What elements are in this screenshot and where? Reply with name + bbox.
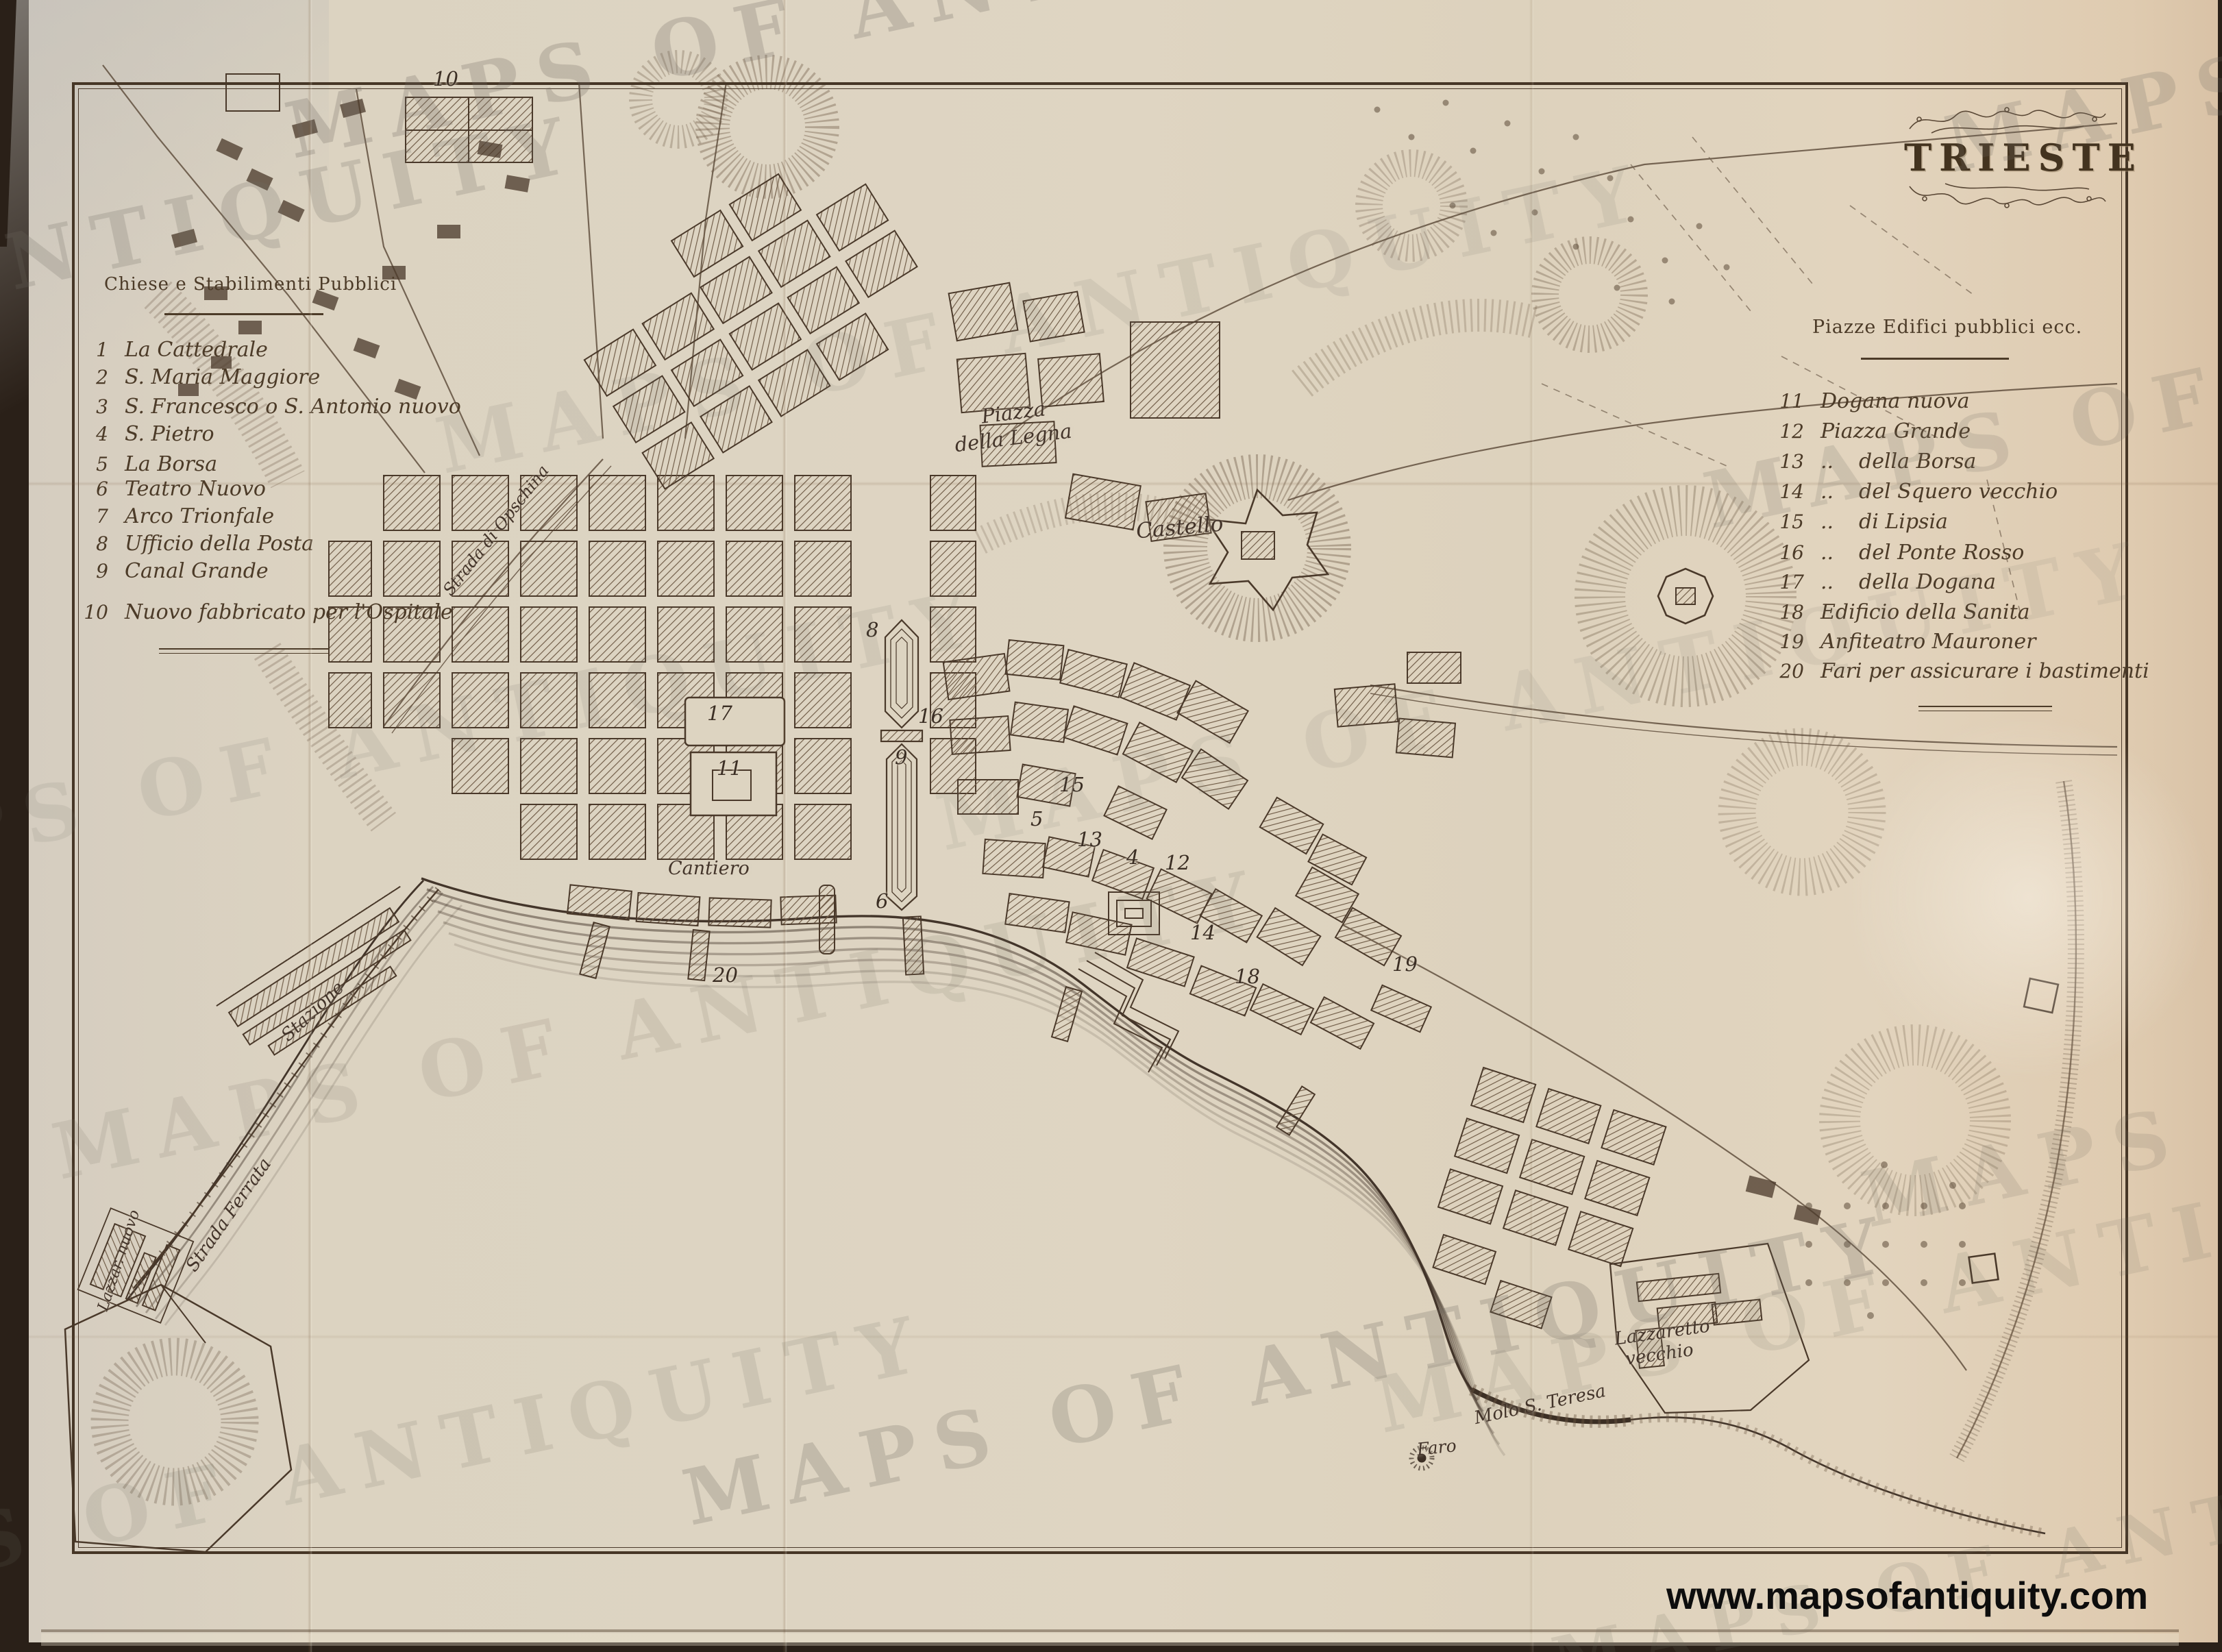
legend-item-label: Canal Grande — [125, 559, 269, 583]
legend-item-number: 17 — [1771, 571, 1804, 593]
map-number-6: 6 — [876, 889, 888, 913]
legend-item-number: 7 — [75, 505, 108, 528]
legend-item-label: S. Pietro — [125, 422, 214, 446]
legend-item-label: Ufficio della Posta — [125, 532, 314, 556]
legend-item-number: 2 — [75, 366, 108, 389]
photo-of-antique-map: TRIESTE Chiese e Stabilimenti Pubblici 1… — [0, 0, 2222, 1652]
legend-item-label: di Lipsia — [1859, 510, 1948, 534]
camera-glare — [1843, 713, 2213, 1083]
legend-item-number: 6 — [75, 478, 108, 500]
legend-item-10: 10Nuovo fabbricato per l'Ospitale — [75, 600, 453, 624]
legend-ditto-mark: .. — [1820, 541, 1859, 565]
legend-left-underline — [164, 313, 323, 315]
legend-right-bottom-rule — [1918, 706, 2052, 711]
legend-item-9: 9Canal Grande — [75, 559, 269, 583]
legend-item-number: 4 — [75, 423, 108, 445]
legend-item-3: 3S. Francesco o S. Antonio nuovo — [75, 395, 461, 419]
legend-item-label: Nuovo fabbricato per l'Ospitale — [125, 600, 453, 624]
website-url: www.mapsofantiquity.com — [1666, 1573, 2148, 1618]
legend-item-number: 9 — [75, 560, 108, 582]
map-number-19: 19 — [1392, 952, 1418, 976]
legend-item-8: 8Ufficio della Posta — [75, 532, 314, 556]
legend-item-label: Teatro Nuovo — [125, 477, 266, 501]
title-flourish-bottom — [1904, 180, 2110, 211]
map-number-16: 16 — [918, 704, 943, 728]
legend-left-bottom-rule — [159, 648, 329, 654]
legend-item-number: 5 — [75, 453, 108, 476]
legend-item-7: 7Arco Trionfale — [75, 504, 274, 528]
map-number-4: 4 — [1126, 846, 1139, 869]
legend-item-number: 16 — [1771, 541, 1804, 564]
legend-item-number: 11 — [1771, 390, 1804, 412]
map-number-18: 18 — [1235, 965, 1260, 988]
map-label-cantiero: Cantiero — [668, 858, 750, 879]
legend-item-label: Arco Trionfale — [125, 504, 274, 528]
legend-item-4: 4S. Pietro — [75, 422, 214, 446]
legend-item-number: 1 — [75, 338, 108, 361]
map-number-11: 11 — [717, 756, 742, 780]
legend-item-number: 8 — [75, 532, 108, 555]
legend-item-number: 3 — [75, 395, 108, 418]
legend-item-1: 1La Cattedrale — [75, 338, 268, 362]
legend-right-underline — [1861, 358, 2009, 360]
legend-item-5: 5La Borsa — [75, 452, 217, 476]
legend-item-number: 10 — [75, 601, 108, 624]
legend-item-label: La Borsa — [125, 452, 217, 476]
legend-item-label: La Cattedrale — [125, 338, 268, 362]
legend-item-6: 6Teatro Nuovo — [75, 477, 266, 501]
map-number-9: 9 — [895, 745, 907, 769]
legend-item-label: S. Maria Maggiore — [125, 365, 320, 389]
legend-item-2: 2S. Maria Maggiore — [75, 365, 320, 389]
legend-right-heading: Piazze Edifici pubblici ecc. — [1812, 317, 2082, 338]
legend-item-label: S. Francesco o S. Antonio nuovo — [125, 395, 461, 419]
fold-crease-vertical-1 — [308, 0, 312, 1652]
